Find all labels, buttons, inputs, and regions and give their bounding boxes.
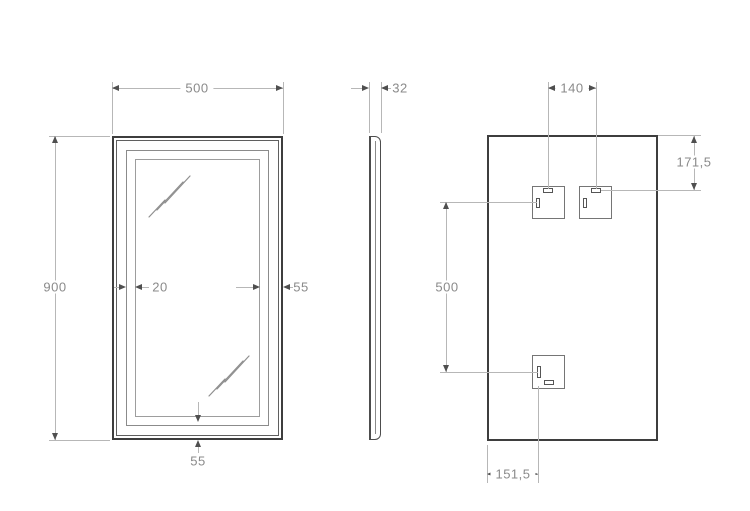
dimension-bracket-bottom-offset: 151,5	[0, 0, 750, 511]
bracket-bottom-offset-label: 151,5	[490, 468, 535, 481]
mirror-technical-drawing: 500 900 20 55 55	[0, 0, 750, 511]
